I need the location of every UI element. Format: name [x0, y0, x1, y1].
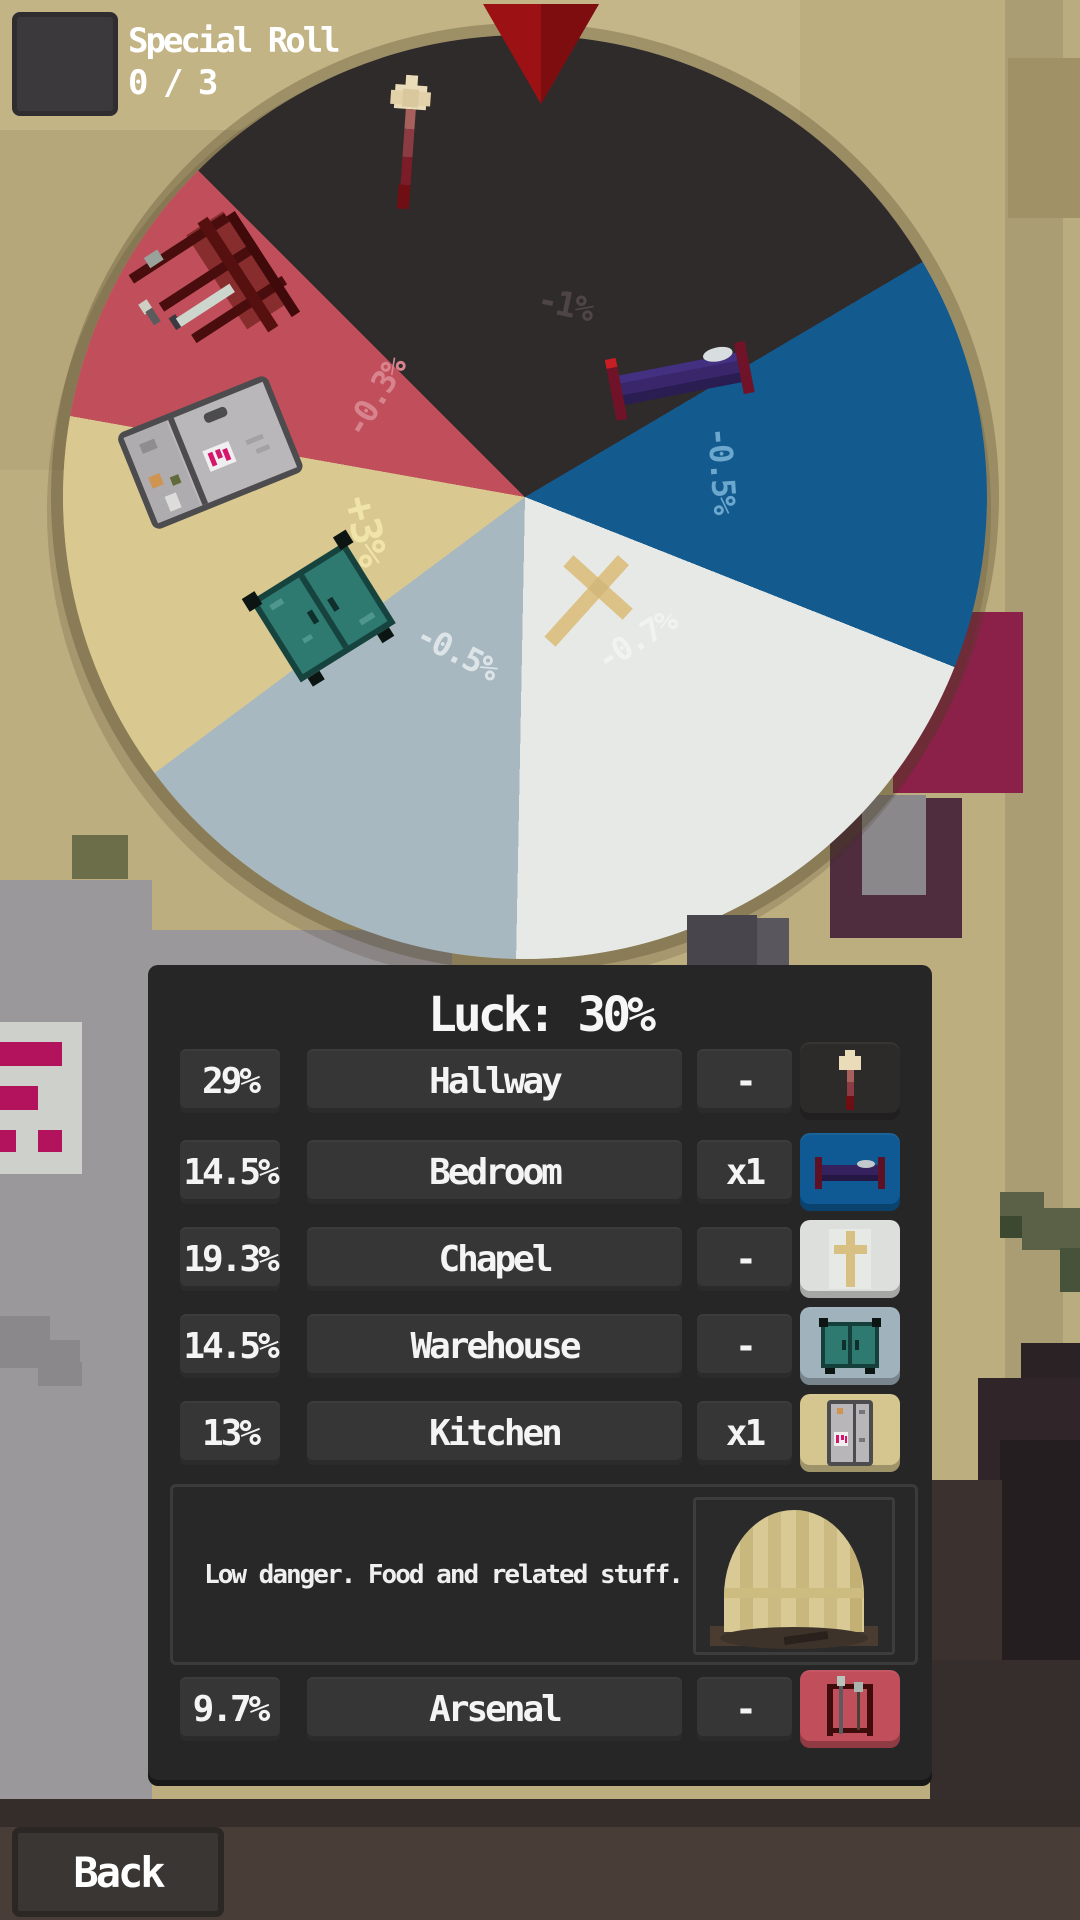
cabinet-icon	[800, 1307, 900, 1385]
room-name-cell: Kitchen	[307, 1401, 682, 1465]
multiplier-cell: -	[697, 1314, 792, 1378]
back-button[interactable]: Back	[12, 1827, 224, 1917]
fridge-icon	[112, 369, 311, 539]
background-shadow	[930, 1480, 1002, 1680]
room-preview-image	[693, 1497, 895, 1655]
multiplier-cell: -	[697, 1677, 792, 1741]
cross-icon	[800, 1220, 900, 1298]
back-button-label: Back	[73, 1848, 162, 1897]
special-roll-count: 0 / 3	[128, 62, 338, 104]
multiplier-cell: x1	[697, 1401, 792, 1465]
room-name-cell: Arsenal	[307, 1677, 682, 1741]
torch-icon	[380, 74, 434, 226]
special-roll-button[interactable]	[12, 12, 118, 116]
chance-cell: 9.7%	[180, 1677, 280, 1741]
chance-cell: 29%	[180, 1049, 280, 1113]
wheel-label-hallway: -1%	[534, 280, 597, 331]
bed-icon	[800, 1133, 900, 1211]
chance-cell: 14.5%	[180, 1314, 280, 1378]
wall-patch	[1008, 58, 1080, 218]
background-pot-inner	[862, 795, 926, 895]
luck-title: Luck: 30%	[148, 987, 932, 1043]
chance-cell: 19.3%	[180, 1227, 280, 1291]
wheel-label-arsenal: -0.3%	[336, 350, 413, 444]
room-description-box: Low danger. Food and related stuff.	[170, 1484, 918, 1665]
floor-shadow	[0, 1799, 1080, 1827]
fridge-icon	[800, 1394, 900, 1472]
room-name-cell: Bedroom	[307, 1140, 682, 1204]
room-description-text: Low danger. Food and related stuff.	[203, 1487, 683, 1662]
bed-icon	[596, 326, 764, 434]
torch-icon	[800, 1042, 900, 1120]
special-roll-title: Special Roll	[128, 20, 338, 62]
chance-cell: 13%	[180, 1401, 280, 1465]
game-screen: -1% -0.3% +3% -0.5% -0.7% -0.5% Special …	[0, 0, 1080, 1920]
background-box	[72, 835, 128, 879]
multiplier-cell: x1	[697, 1140, 792, 1204]
special-roll-label: Special Roll 0 / 3	[128, 20, 338, 104]
fortune-wheel[interactable]: -1% -0.3% +3% -0.5% -0.7% -0.5%	[63, 35, 987, 959]
multiplier-cell: -	[697, 1049, 792, 1113]
room-name-cell: Warehouse	[307, 1314, 682, 1378]
background-shadow	[1000, 1440, 1080, 1680]
wheel-pointer-icon	[483, 4, 599, 104]
fridge-poster	[0, 1022, 82, 1174]
background-plant	[1060, 1248, 1080, 1292]
room-name-cell: Chapel	[307, 1227, 682, 1291]
luck-panel: Luck: 30% 29% Hallway - 14.5% Bedroom x1	[148, 965, 932, 1780]
chance-cell: 14.5%	[180, 1140, 280, 1204]
room-name-cell: Hallway	[307, 1049, 682, 1113]
background-plant	[1000, 1216, 1024, 1238]
wheel-label-warehouse: -0.5%	[410, 615, 504, 688]
wheel-label-bedroom: -0.5%	[700, 426, 744, 515]
weapon-rack-icon	[800, 1670, 900, 1748]
background-plant	[1022, 1208, 1080, 1250]
multiplier-cell: -	[697, 1227, 792, 1291]
background-shadow	[930, 1660, 1080, 1805]
background-steps	[38, 1362, 82, 1386]
